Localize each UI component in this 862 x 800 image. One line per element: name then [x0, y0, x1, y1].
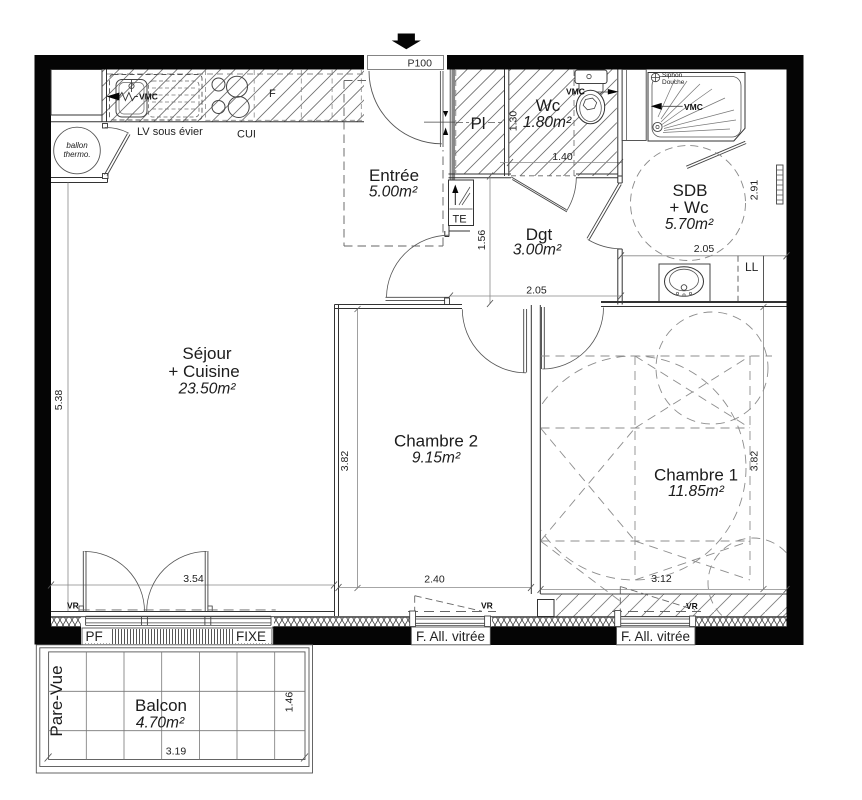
svg-text:1.80m²: 1.80m²	[523, 114, 572, 131]
svg-text:VMC: VMC	[684, 102, 703, 112]
svg-text:Wc: Wc	[536, 96, 561, 115]
svg-text:VR: VR	[686, 601, 698, 611]
svg-text:P100: P100	[407, 58, 432, 70]
svg-text:3.00m²: 3.00m²	[513, 242, 562, 259]
svg-text:3.54: 3.54	[183, 573, 204, 585]
svg-text:1.40: 1.40	[552, 151, 573, 163]
svg-text:2.40: 2.40	[424, 574, 445, 586]
svg-text:2.05: 2.05	[526, 285, 547, 297]
svg-text:+ Cuisine: + Cuisine	[168, 362, 239, 381]
svg-text:VMC: VMC	[566, 87, 585, 97]
svg-text:Chambre 1: Chambre 1	[654, 466, 738, 485]
svg-text:ballon: ballon	[66, 141, 88, 150]
svg-text:1.30: 1.30	[508, 111, 520, 132]
svg-text:5.00m²: 5.00m²	[369, 184, 418, 201]
svg-text:F: F	[269, 88, 276, 100]
svg-text:11.85m²: 11.85m²	[668, 483, 725, 500]
svg-text:Siphon: Siphon	[662, 72, 683, 79]
svg-text:2.05: 2.05	[694, 243, 715, 255]
svg-text:TE: TE	[453, 214, 467, 226]
svg-text:Douche: Douche	[662, 79, 685, 86]
svg-text:Pare-Vue: Pare-Vue	[47, 665, 66, 736]
svg-text:VR: VR	[481, 601, 493, 611]
svg-text:2.91: 2.91	[749, 180, 761, 201]
svg-text:1.46: 1.46	[284, 692, 296, 713]
svg-text:1.56: 1.56	[476, 230, 488, 251]
svg-text:3.19: 3.19	[166, 746, 187, 758]
svg-text:LV sous évier: LV sous évier	[137, 126, 203, 138]
svg-text:Balcon: Balcon	[135, 696, 187, 715]
svg-text:PF: PF	[86, 629, 103, 644]
svg-text:VMC: VMC	[139, 92, 158, 102]
svg-text:3.12: 3.12	[651, 573, 672, 585]
svg-text:F. All. vitrée: F. All. vitrée	[621, 629, 690, 644]
svg-text:LL: LL	[745, 260, 759, 274]
svg-text:4.70m²: 4.70m²	[136, 715, 185, 732]
svg-text:CUI: CUI	[237, 129, 256, 141]
svg-text:VR: VR	[67, 601, 79, 611]
svg-text:3.82: 3.82	[339, 451, 351, 472]
svg-text:5.70m²: 5.70m²	[665, 216, 714, 233]
svg-text:9.15m²: 9.15m²	[412, 450, 461, 467]
svg-text:FIXE: FIXE	[236, 629, 266, 644]
svg-text:F. All. vitrée: F. All. vitrée	[416, 629, 485, 644]
svg-text:23.50m²: 23.50m²	[178, 381, 237, 398]
svg-text:5.38: 5.38	[53, 390, 65, 411]
svg-text:+ Wc: + Wc	[669, 198, 709, 217]
svg-text:Pl: Pl	[470, 114, 485, 133]
svg-text:Entrée: Entrée	[369, 166, 419, 185]
svg-text:thermo.: thermo.	[63, 150, 90, 159]
svg-text:Chambre 2: Chambre 2	[394, 432, 478, 451]
svg-text:Séjour: Séjour	[182, 344, 231, 363]
